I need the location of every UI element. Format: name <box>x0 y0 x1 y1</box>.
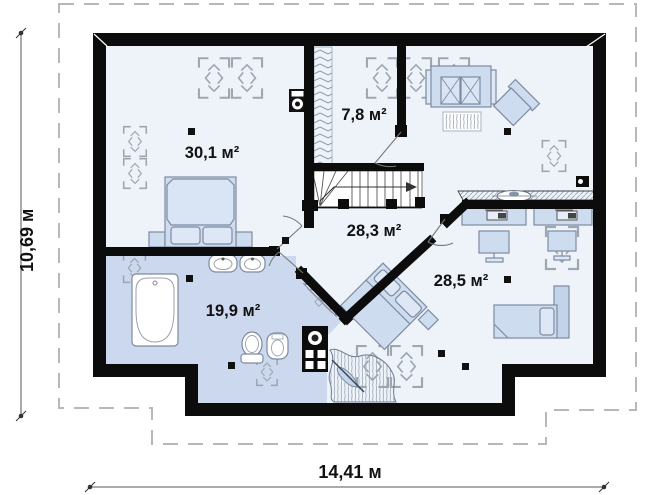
room-label-bathroom: 19,9 м² <box>206 302 261 320</box>
dimension-height-label: 10,69 м <box>17 209 37 272</box>
toilet-icon <box>241 332 263 363</box>
shelf-counter <box>458 191 596 202</box>
stairs <box>314 171 422 208</box>
room-label-bedroom-2: 28,5 м² <box>434 272 489 290</box>
nightstand-icon <box>236 232 252 247</box>
floor-plan-page: 30,1 м² 7,8 м² 28,3 м² 19,9 м² 28,5 м² 1… <box>0 0 655 495</box>
nightstand-icon <box>149 232 165 247</box>
sink-icon <box>209 255 237 272</box>
floor-plan: 30,1 м² 7,8 м² 28,3 м² 19,9 м² 28,5 м² 1… <box>0 0 655 495</box>
double-bed-icon <box>149 177 252 247</box>
wardrobe-rail-hatch <box>314 47 332 166</box>
chimney-icon <box>302 326 328 372</box>
sofa-icon <box>426 66 496 107</box>
wall-box-icon <box>576 176 589 187</box>
dimension-bottom: 14,41 м <box>85 462 609 492</box>
sink-icon <box>240 255 265 272</box>
rug-icon <box>443 112 481 131</box>
bathtub-icon <box>132 274 178 346</box>
room-label-bedroom-1: 30,1 м² <box>185 144 240 162</box>
room-label-hall: 28,3 м² <box>347 222 402 240</box>
dimension-left: 10,69 м <box>16 28 37 421</box>
dimension-width-label: 14,41 м <box>318 462 381 482</box>
bidet-icon <box>267 333 288 359</box>
stove-icon <box>289 89 306 112</box>
room-label-wardrobe: 7,8 м² <box>341 106 387 124</box>
